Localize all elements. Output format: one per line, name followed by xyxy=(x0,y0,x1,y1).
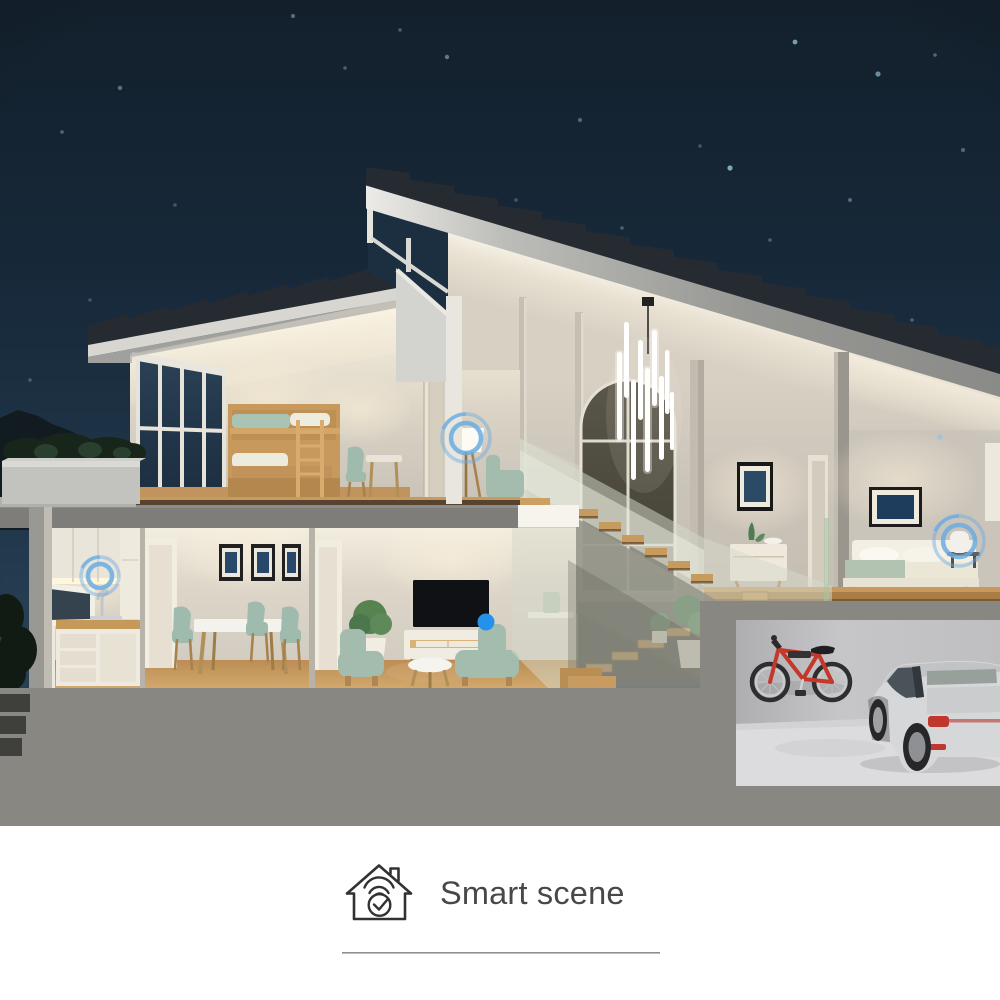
svg-text:Smart scene: Smart scene xyxy=(440,875,625,911)
